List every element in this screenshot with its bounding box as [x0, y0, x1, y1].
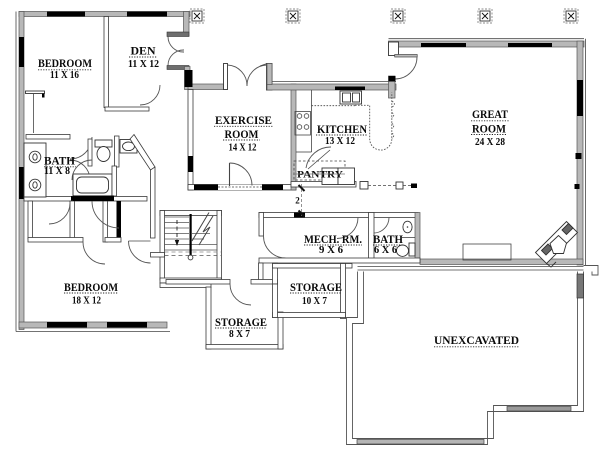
svg-text:18 X 12: 18 X 12 [72, 296, 101, 307]
svg-text:BEDROOM: BEDROOM [64, 282, 118, 294]
svg-text:STORAGE: STORAGE [215, 317, 267, 329]
svg-text:14 X 12: 14 X 12 [229, 142, 257, 153]
svg-text:STORAGE: STORAGE [290, 282, 342, 294]
svg-text:9 X 6: 9 X 6 [319, 245, 343, 256]
svg-text:11 X 16: 11 X 16 [50, 70, 79, 81]
svg-text:2: 2 [295, 196, 300, 206]
svg-text:BATH: BATH [373, 234, 403, 246]
svg-text:PANTRY: PANTRY [297, 170, 344, 180]
svg-text:MECH. RM.: MECH. RM. [304, 234, 362, 246]
svg-text:BEDROOM: BEDROOM [38, 58, 92, 70]
svg-text:ROOM: ROOM [225, 129, 259, 141]
svg-text:UNEXCAVATED: UNEXCAVATED [434, 335, 519, 347]
svg-text:6 X 6: 6 X 6 [374, 245, 397, 256]
svg-text:11 X 8: 11 X 8 [44, 166, 70, 177]
svg-text:10 X 7: 10 X 7 [302, 296, 327, 307]
svg-text:DEN: DEN [131, 46, 157, 58]
svg-text:KITCHEN: KITCHEN [317, 124, 368, 136]
svg-text:11 X 12: 11 X 12 [128, 59, 159, 70]
svg-text:24 X 28: 24 X 28 [475, 137, 505, 148]
svg-text:ROOM: ROOM [472, 123, 506, 135]
svg-text:8 X 7: 8 X 7 [229, 329, 250, 340]
svg-text:13 X 12: 13 X 12 [325, 136, 355, 147]
svg-text:EXERCISE: EXERCISE [215, 115, 272, 127]
svg-text:GREAT: GREAT [472, 109, 508, 121]
